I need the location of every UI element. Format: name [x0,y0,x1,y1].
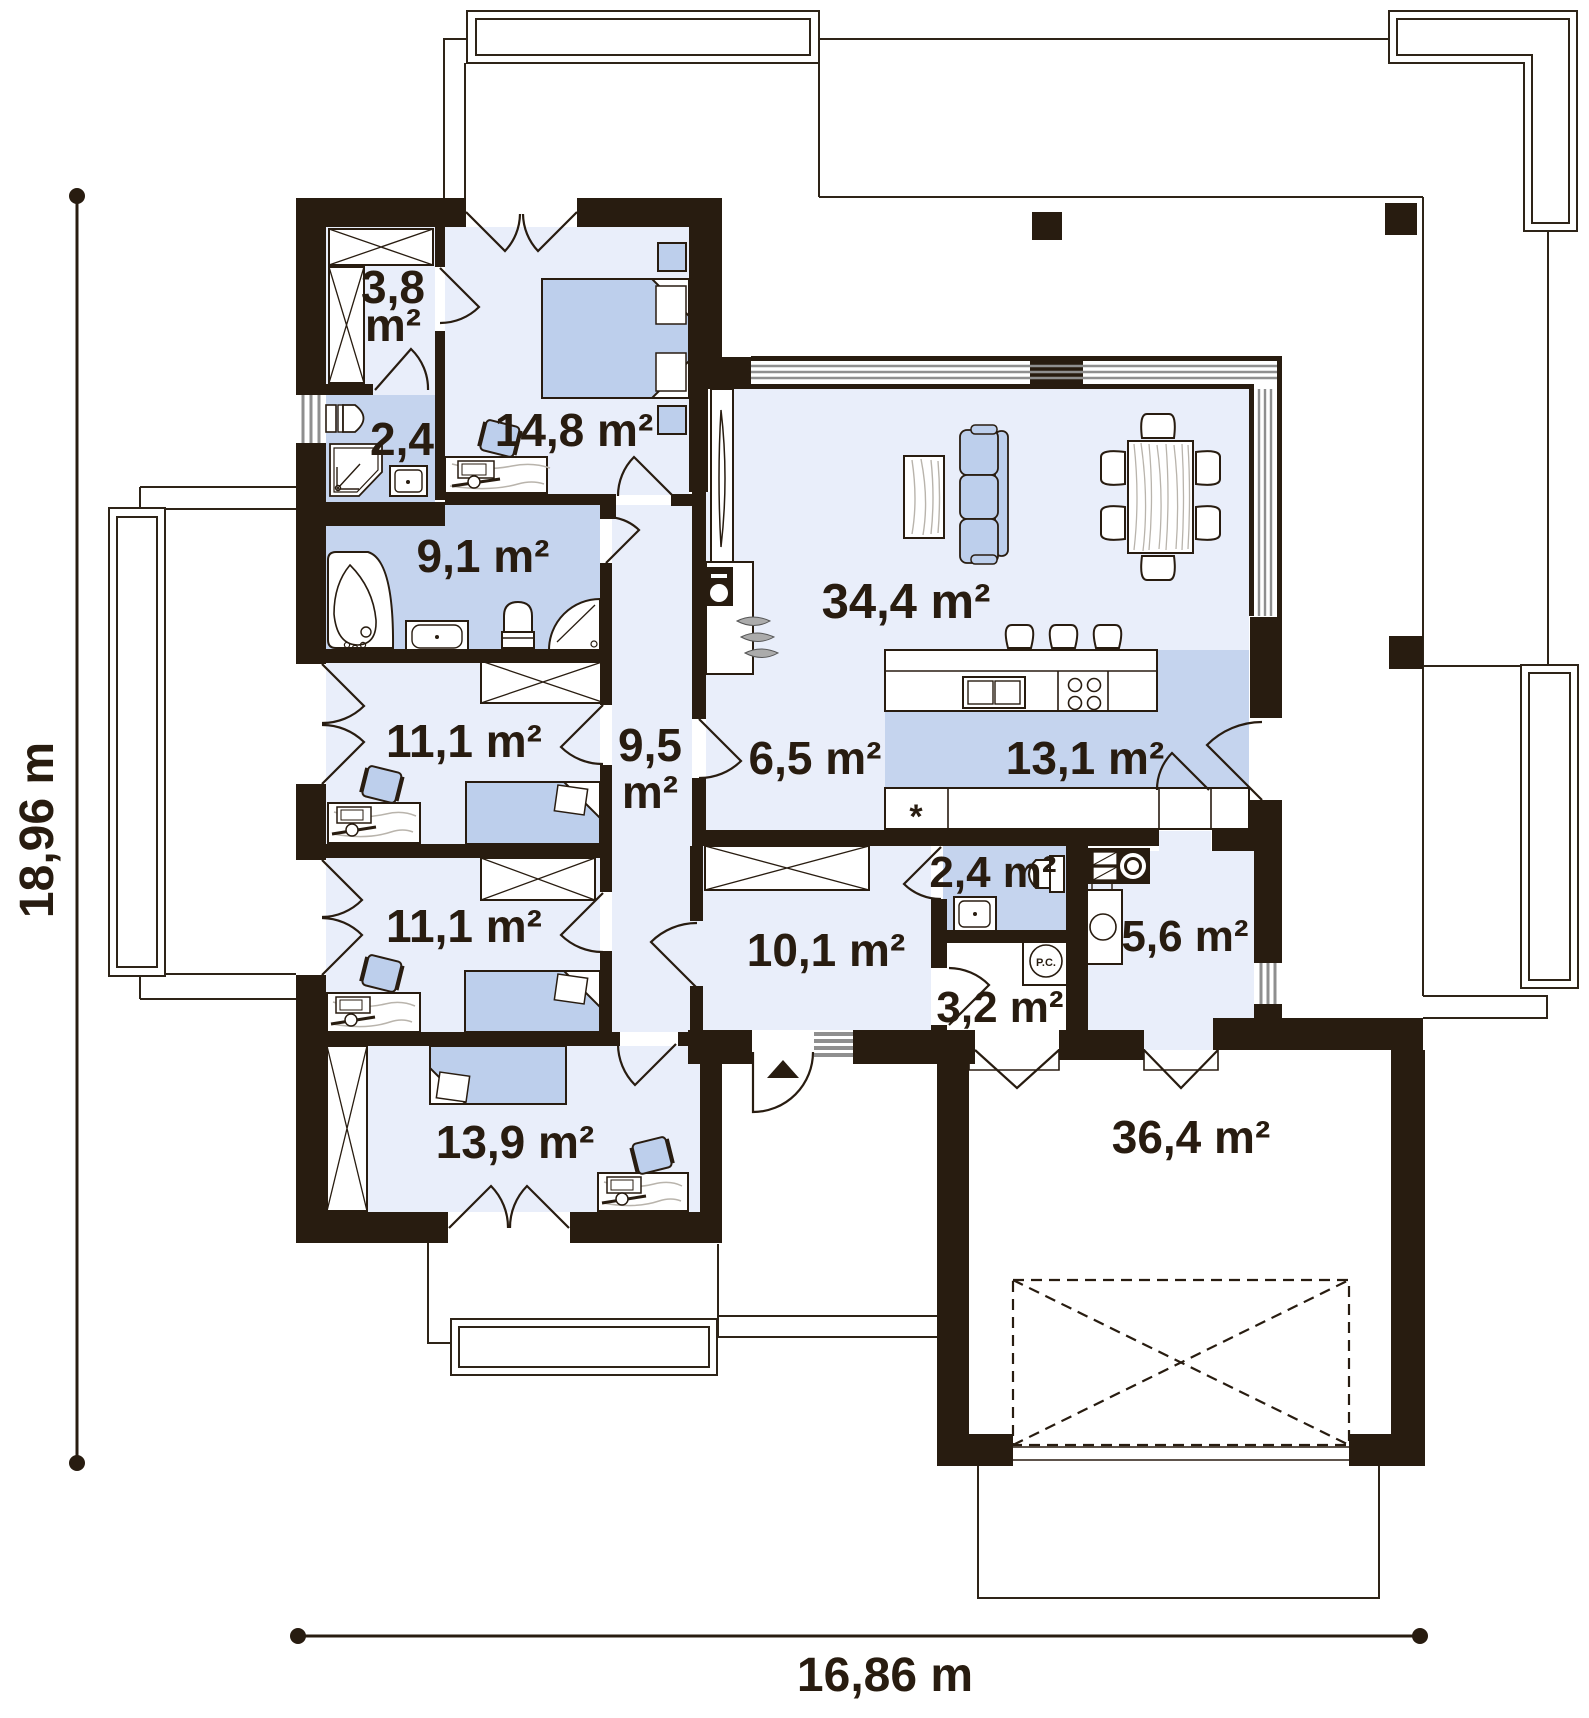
svg-text:2,4 m²: 2,4 m² [929,848,1056,897]
svg-text:9,1 m²: 9,1 m² [417,530,550,582]
svg-text:P.C.: P.C. [1036,957,1056,969]
svg-text:13,1 m²: 13,1 m² [1006,732,1165,784]
svg-text:6,5 m²: 6,5 m² [749,732,882,784]
svg-text:14,8 m²: 14,8 m² [495,404,654,456]
svg-text:9,5: 9,5 [618,719,682,771]
svg-text:m²: m² [622,766,678,818]
svg-text:m²: m² [365,299,421,351]
svg-text:10,1 m²: 10,1 m² [747,924,906,976]
svg-text:16,86 m: 16,86 m [797,1649,973,1702]
svg-text:5,6 m²: 5,6 m² [1121,912,1248,961]
svg-text:34,4 m²: 34,4 m² [822,575,991,629]
svg-text:3,2 m²: 3,2 m² [936,983,1063,1032]
svg-text:11,1 m²: 11,1 m² [386,715,542,767]
svg-text:36,4 m²: 36,4 m² [1112,1111,1271,1163]
svg-text:2,4: 2,4 [370,413,434,465]
svg-text:11,1 m²: 11,1 m² [386,900,542,952]
svg-text:18,96 m: 18,96 m [11,742,64,918]
svg-text:13,9 m²: 13,9 m² [436,1116,595,1168]
